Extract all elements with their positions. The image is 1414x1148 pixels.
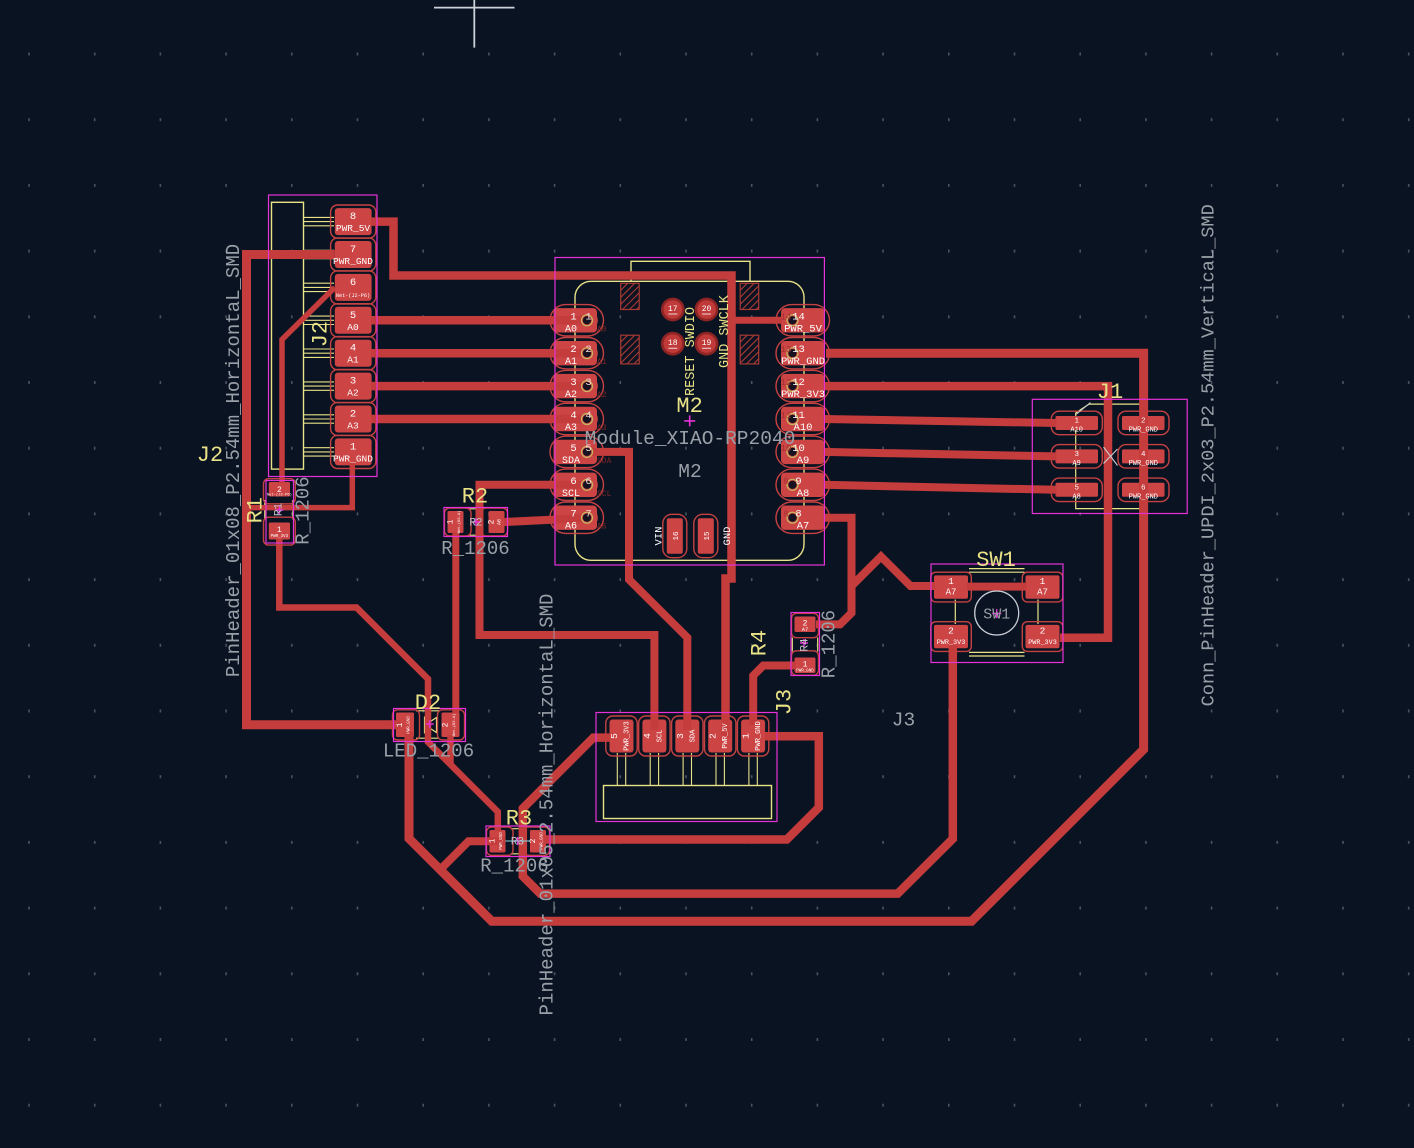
svg-text:SDA: SDA — [689, 729, 697, 742]
svg-text:J2: J2 — [309, 321, 334, 347]
svg-text:A7: A7 — [797, 521, 810, 533]
svg-text:4: 4 — [642, 733, 653, 739]
svg-text:SCL: SCL — [597, 490, 612, 499]
svg-text:12: 12 — [781, 378, 792, 388]
svg-text:1: 1 — [741, 733, 752, 739]
svg-text:A1: A1 — [347, 355, 359, 366]
svg-text:20: 20 — [702, 305, 712, 314]
svg-text:1: 1 — [1074, 418, 1079, 426]
svg-text:8: 8 — [783, 510, 788, 520]
svg-text:A3: A3 — [347, 421, 359, 432]
svg-text:R3: R3 — [511, 837, 524, 849]
svg-text:3: 3 — [570, 377, 576, 389]
svg-text:3: 3 — [675, 733, 686, 739]
svg-text:R_1206: R_1206 — [293, 476, 315, 544]
svg-text:A9: A9 — [1072, 460, 1080, 468]
svg-text:1: 1 — [277, 526, 282, 535]
svg-text:PWR_3V3: PWR_3V3 — [271, 535, 289, 539]
svg-text:11: 11 — [781, 411, 792, 421]
svg-text:SCL: SCL — [656, 730, 664, 743]
svg-text:A0: A0 — [597, 325, 607, 334]
svg-text:2: 2 — [1040, 626, 1046, 637]
svg-text:SW1: SW1 — [976, 548, 1016, 573]
svg-text:5: 5 — [350, 310, 356, 322]
svg-text:R2: R2 — [469, 518, 482, 530]
svg-text:12: 12 — [792, 377, 805, 389]
svg-text:PWR_3V3: PWR_3V3 — [781, 389, 825, 401]
svg-text:R1: R1 — [273, 503, 285, 517]
svg-text:11: 11 — [792, 410, 805, 422]
svg-text:14: 14 — [781, 312, 792, 322]
svg-text:2: 2 — [350, 409, 356, 421]
svg-text:A7: A7 — [946, 588, 957, 598]
svg-text:Net-(J2-P6): Net-(J2-P6) — [336, 293, 370, 299]
svg-text:A1: A1 — [565, 357, 577, 368]
svg-text:RESET SWDIO: RESET SWDIO — [684, 307, 699, 396]
svg-text:1: 1 — [396, 722, 405, 727]
svg-text:Module_XIAO-RP2040: Module_XIAO-RP2040 — [585, 428, 796, 450]
svg-text:A7: A7 — [802, 626, 809, 633]
svg-text:4: 4 — [585, 410, 591, 422]
svg-text:PWR_GND: PWR_GND — [408, 716, 412, 734]
svg-text:A8: A8 — [1072, 493, 1080, 501]
svg-text:R_1206: R_1206 — [819, 610, 841, 678]
svg-text:PWR_GND: PWR_GND — [500, 832, 504, 850]
svg-text:SW1: SW1 — [983, 607, 1010, 624]
svg-text:2: 2 — [708, 733, 719, 739]
svg-text:3: 3 — [585, 377, 591, 389]
svg-text:A2: A2 — [565, 390, 577, 401]
svg-text:3: 3 — [350, 376, 356, 388]
svg-text:6: 6 — [350, 277, 356, 289]
svg-text:Conn_PinHeader_UPDI_2x03_P2.54: Conn_PinHeader_UPDI_2x03_P2.54mm_Vertica… — [1199, 204, 1220, 706]
svg-text:PWR_GND: PWR_GND — [796, 670, 814, 674]
svg-text:9: 9 — [795, 476, 801, 488]
svg-text:M2: M2 — [676, 394, 702, 419]
svg-text:13: 13 — [792, 344, 805, 356]
svg-text:PWR_5V: PWR_5V — [722, 723, 730, 749]
svg-text:1: 1 — [570, 311, 576, 323]
svg-text:1: 1 — [803, 661, 808, 670]
svg-text:M2: M2 — [678, 461, 701, 483]
svg-text:1: 1 — [350, 441, 356, 453]
svg-text:15: 15 — [704, 531, 712, 541]
svg-text:18: 18 — [668, 339, 678, 348]
svg-text:PWR_3V3: PWR_3V3 — [1028, 639, 1057, 647]
svg-text:PinHeader_01x05_2.54mm_Horizon: PinHeader_01x05_2.54mm_HorizontaL_SMD — [537, 594, 559, 1016]
svg-text:14: 14 — [792, 311, 805, 323]
svg-text:PWR_GND: PWR_GND — [781, 356, 825, 368]
svg-text:2: 2 — [442, 722, 451, 727]
svg-text:4: 4 — [1141, 451, 1146, 459]
svg-text:A0: A0 — [565, 324, 577, 335]
svg-text:Net-(D2-A): Net-(D2-A) — [452, 714, 457, 737]
svg-text:A6: A6 — [565, 522, 577, 533]
svg-text:2: 2 — [585, 344, 591, 356]
svg-text:19: 19 — [702, 339, 712, 348]
svg-text:2: 2 — [488, 519, 497, 524]
svg-text:PinHeader_01x08_P2.54mm_Horizo: PinHeader_01x08_P2.54mm_HorizontaL_SMD — [223, 244, 245, 677]
svg-text:Net-(J2-P6): Net-(J2-P6) — [267, 493, 292, 498]
svg-text:GND: GND — [722, 527, 734, 546]
svg-text:3: 3 — [1074, 451, 1079, 459]
svg-text:R4: R4 — [799, 638, 811, 652]
svg-text:4: 4 — [350, 343, 356, 355]
svg-text:J1: J1 — [1097, 380, 1123, 405]
svg-text:PWR_GND: PWR_GND — [333, 256, 373, 267]
svg-text:GND SWCLK: GND SWCLK — [718, 294, 733, 368]
svg-text:2: 2 — [1141, 418, 1146, 426]
svg-text:2: 2 — [570, 344, 576, 356]
svg-text:A1: A1 — [597, 358, 607, 367]
svg-text:1: 1 — [948, 576, 954, 587]
svg-text:1: 1 — [489, 838, 498, 843]
svg-text:6: 6 — [585, 476, 591, 488]
svg-text:9: 9 — [783, 477, 788, 487]
svg-text:7: 7 — [585, 509, 591, 521]
svg-text:A8: A8 — [797, 488, 810, 500]
svg-text:R1: R1 — [244, 497, 269, 523]
svg-text:D2: D2 — [415, 691, 441, 716]
svg-text:A10: A10 — [794, 422, 813, 434]
svg-text:17: 17 — [668, 305, 678, 314]
svg-text:VIN: VIN — [654, 527, 666, 546]
svg-text:6: 6 — [1141, 484, 1146, 492]
svg-text:SCL: SCL — [562, 489, 580, 500]
svg-text:5: 5 — [570, 443, 576, 455]
svg-text:SDA: SDA — [562, 456, 580, 467]
svg-text:LED_1206: LED_1206 — [383, 741, 474, 763]
svg-text:Net-(D2-A): Net-(D2-A) — [457, 511, 462, 534]
svg-text:PWR_GND: PWR_GND — [1129, 493, 1158, 501]
svg-text:7: 7 — [350, 244, 356, 256]
svg-text:A3: A3 — [565, 423, 577, 434]
svg-text:A2: A2 — [347, 388, 359, 399]
svg-text:PWR_GND: PWR_GND — [755, 721, 763, 750]
svg-text:A7: A7 — [1037, 588, 1048, 598]
svg-text:PWR_3V3: PWR_3V3 — [937, 639, 966, 647]
svg-text:SDA: SDA — [597, 457, 612, 466]
svg-text:5: 5 — [1074, 484, 1079, 492]
svg-text:J2: J2 — [197, 443, 223, 468]
svg-text:A6: A6 — [497, 519, 503, 525]
svg-text:1: 1 — [585, 311, 591, 323]
svg-text:16: 16 — [673, 531, 681, 541]
svg-text:13: 13 — [781, 345, 792, 355]
svg-text:5: 5 — [609, 733, 620, 739]
svg-text:A2: A2 — [597, 391, 607, 400]
svg-text:7: 7 — [570, 509, 576, 521]
svg-text:R2: R2 — [462, 485, 488, 510]
svg-text:J3: J3 — [892, 710, 915, 732]
svg-text:PWR_GND: PWR_GND — [333, 453, 373, 464]
svg-text:PWR_GND: PWR_GND — [1129, 460, 1158, 468]
svg-text:A0: A0 — [347, 322, 359, 333]
svg-text:R_1206: R_1206 — [441, 538, 509, 560]
svg-text:PWR_5V: PWR_5V — [784, 323, 823, 335]
svg-text:J3: J3 — [773, 689, 798, 715]
svg-text:1: 1 — [447, 519, 456, 524]
svg-text:2: 2 — [948, 626, 954, 637]
svg-text:R3: R3 — [506, 807, 532, 832]
svg-text:8: 8 — [795, 509, 801, 521]
svg-text:4: 4 — [570, 410, 576, 422]
svg-text:PWR_5V: PWR_5V — [336, 223, 371, 234]
svg-text:A6: A6 — [597, 523, 607, 532]
svg-text:PWR_3V3: PWR_3V3 — [624, 721, 632, 750]
svg-text:1: 1 — [1040, 576, 1046, 587]
svg-text:A10: A10 — [1070, 427, 1083, 435]
svg-text:R4: R4 — [747, 630, 772, 656]
svg-text:6: 6 — [570, 476, 576, 488]
svg-text:8: 8 — [350, 211, 356, 223]
svg-text:A9: A9 — [797, 455, 810, 467]
svg-text:PWR_GND: PWR_GND — [1129, 427, 1158, 435]
